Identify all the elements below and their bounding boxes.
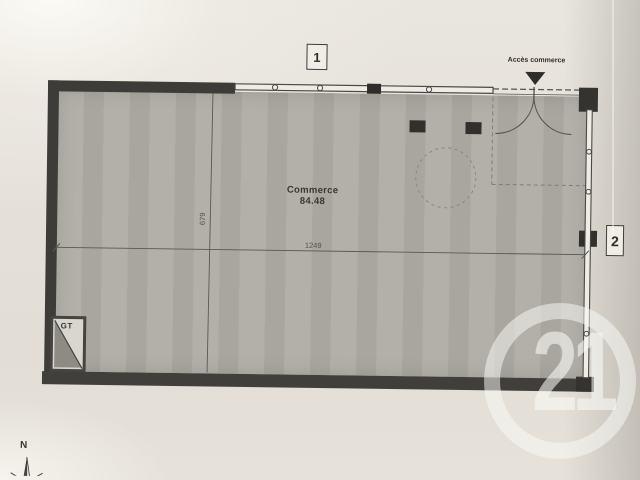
entrance-line [493, 94, 579, 95]
compass-point [11, 473, 26, 480]
scanned-floor-plan-photo: Commerce 84.48 1249 679 GT 1 2 Accès com… [0, 0, 640, 480]
wall-bottom [42, 371, 594, 392]
entrance-threshold [493, 89, 579, 90]
wall-top-left [48, 80, 235, 94]
wall-pier-top-right [579, 88, 598, 112]
section-marker-1: 1 [306, 44, 327, 70]
compass-north-label: N [20, 440, 27, 451]
mullion-icon [584, 331, 589, 336]
door-swing-right [533, 96, 572, 135]
vestibule-boundary-left [492, 97, 493, 184]
mullion-icon [317, 85, 322, 90]
compass-needle-icon [23, 457, 27, 480]
entrance-label: Accès commerce [497, 56, 575, 64]
entrance-arrow-icon [525, 72, 545, 85]
mullion-icon [426, 87, 431, 92]
room-area: 84.48 [252, 195, 372, 208]
mullion-icon [587, 149, 592, 154]
dimension-width-label: 1249 [305, 241, 322, 250]
column [465, 122, 481, 134]
column [409, 120, 425, 132]
compass-needle-icon [27, 457, 31, 480]
glazing-pier [367, 84, 381, 94]
floor-plan: Commerce 84.48 1249 679 GT 1 2 Accès com… [0, 0, 640, 480]
mullion-icon [272, 85, 277, 90]
paper-crease [612, 0, 614, 235]
section-marker-2: 2 [606, 225, 624, 256]
dashed-circle-feature [415, 147, 476, 208]
wall-foot-bottom-right [576, 377, 594, 392]
room-label: Commerce 84.48 [252, 184, 372, 208]
dimension-line-depth [207, 93, 213, 372]
vestibule-boundary-bottom [492, 184, 587, 185]
compass-point [28, 473, 43, 480]
dimension-depth-label: 679 [198, 213, 207, 226]
utility-box-label: GT [61, 321, 73, 330]
mullion-icon [586, 189, 591, 194]
door-swing-left [495, 95, 534, 134]
marker-number: 1 [313, 49, 320, 64]
